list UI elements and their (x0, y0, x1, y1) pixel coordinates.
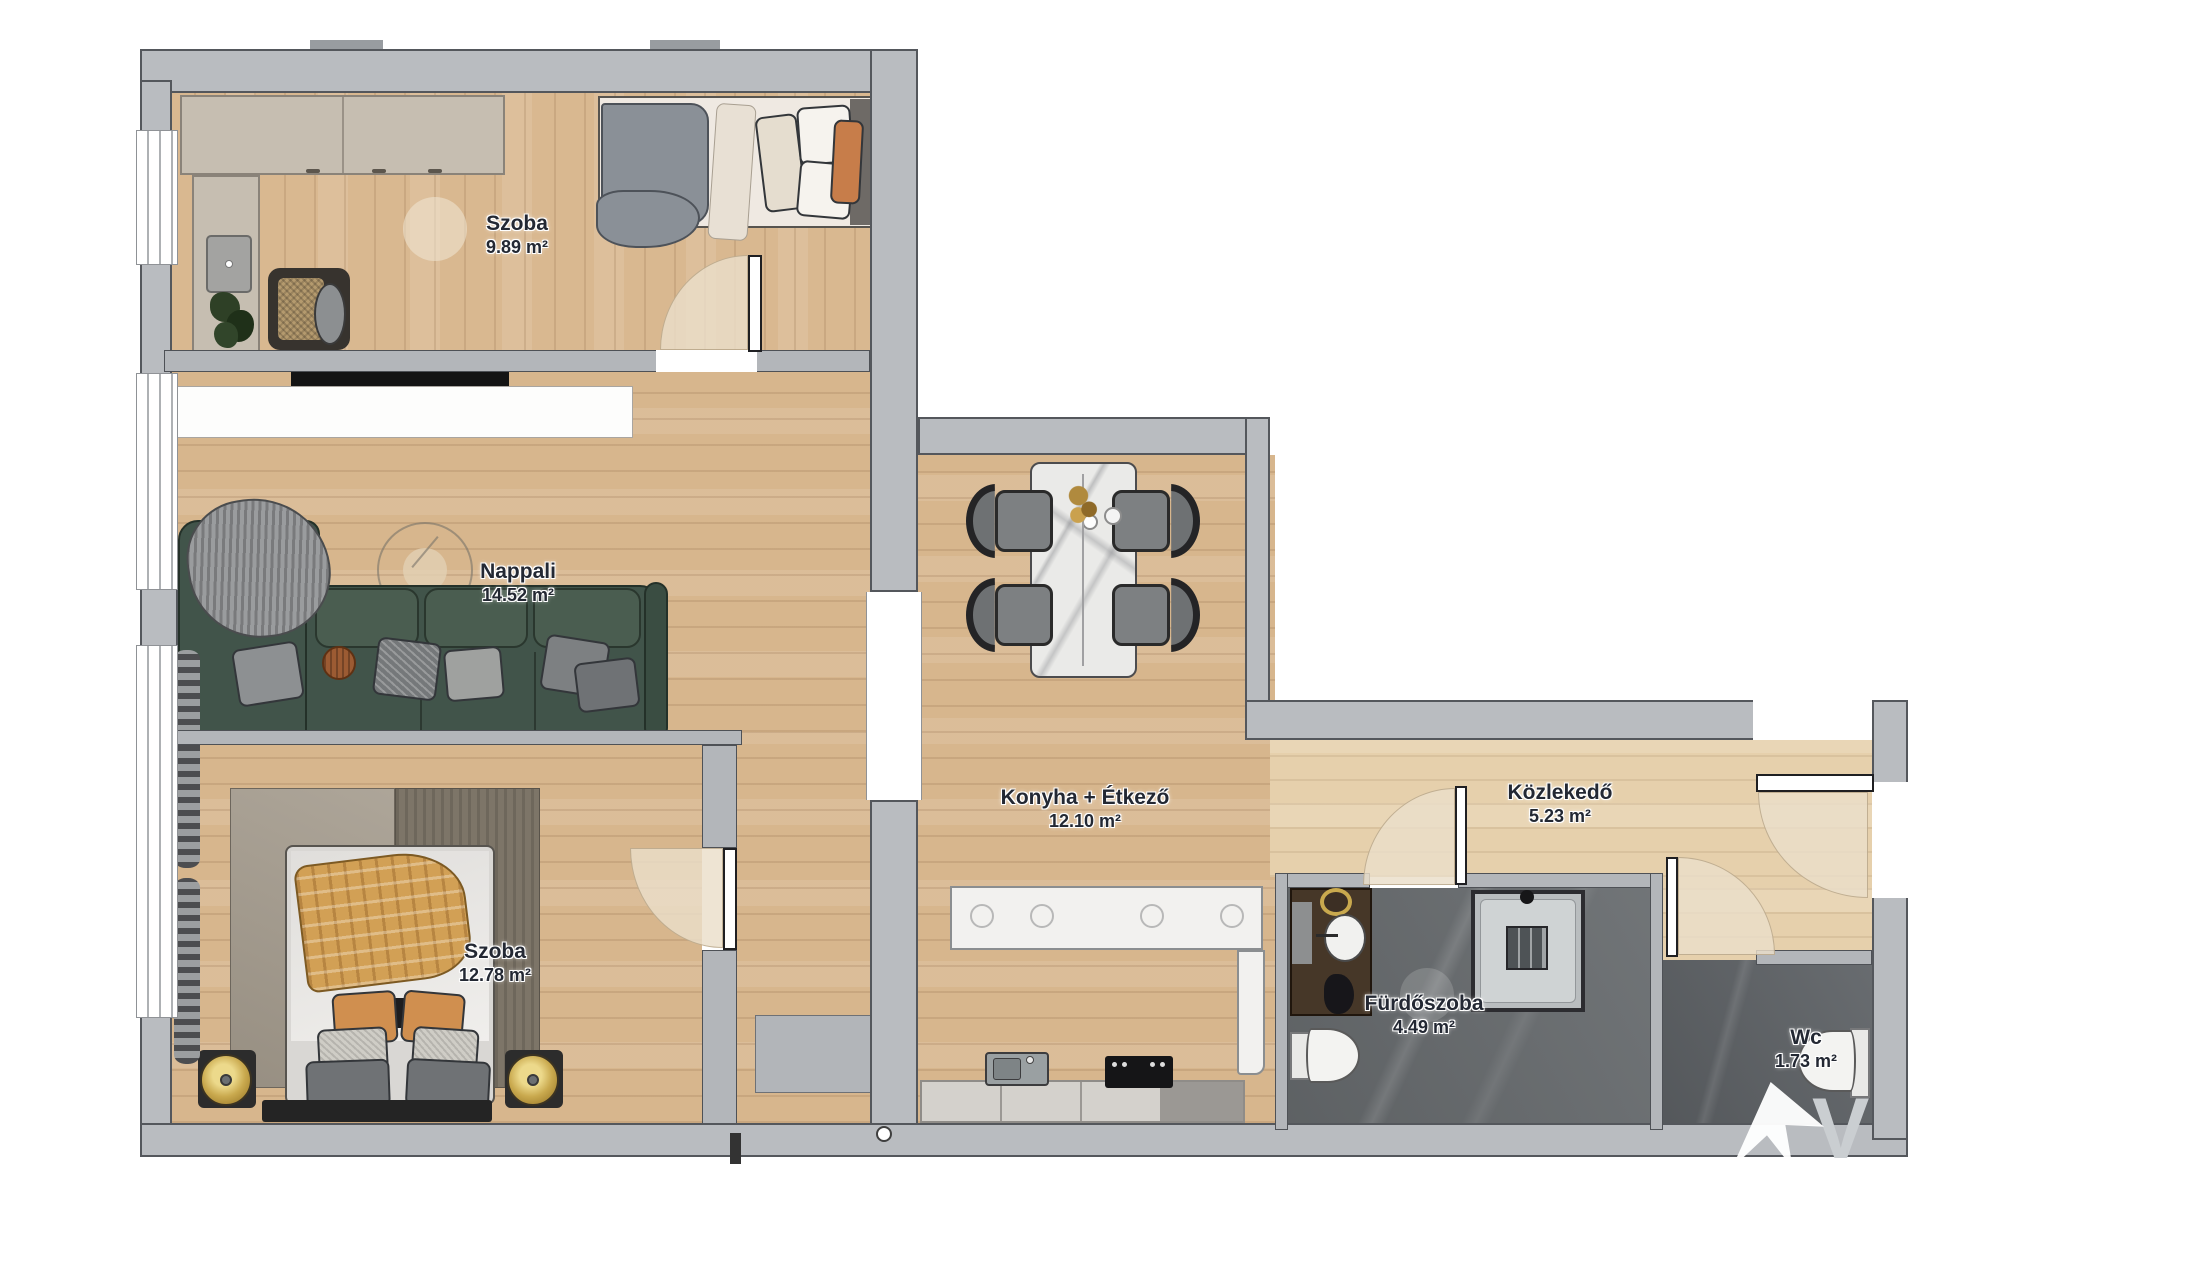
dining-chair-seat (1112, 584, 1170, 646)
desk-chair-cushion (314, 283, 346, 345)
table-decor-dish (1104, 507, 1122, 525)
cooktop-knob (1112, 1062, 1117, 1067)
room-area: 12.10 m² (1001, 810, 1170, 832)
shower-drain (1506, 926, 1548, 970)
room-area: 12.78 m² (459, 964, 531, 986)
ceiling-light-bedroom-top (403, 197, 467, 261)
plan-mark-dot (876, 1126, 892, 1142)
kitchen-counter-side (1237, 950, 1265, 1075)
sofa-pillow (372, 636, 443, 701)
bathroom-mirror (1320, 888, 1352, 916)
room-name: Szoba (459, 940, 531, 964)
bathroom-robe (1324, 974, 1354, 1014)
room-name: Konyha + Étkező (1001, 786, 1170, 810)
wall-bathroom-west (1275, 873, 1288, 1130)
nightstand-lamp-center (527, 1074, 539, 1086)
wardrobe-handle (372, 169, 386, 173)
tv (291, 371, 509, 386)
door-opening-bedroom-top (656, 350, 757, 372)
bathroom-faucet (1316, 934, 1338, 937)
kitchen-base-cabinets (920, 1080, 1245, 1123)
dining-chair-seat (1112, 490, 1170, 552)
tv-console (175, 386, 633, 438)
wardrobe-handle (306, 169, 320, 173)
door-leaf-bedroom-top (748, 255, 762, 352)
wardrobe-divider (342, 97, 344, 173)
kitchen-cooktop (1105, 1056, 1173, 1088)
passage-living-kitchen (866, 592, 922, 800)
wall-bedroom-bottom-east-lower (702, 950, 737, 1130)
shower-head (1520, 890, 1534, 904)
room-area: 14.52 m² (480, 584, 556, 606)
kitchen-counter-socket (1030, 904, 1054, 928)
sofa-pouf (322, 646, 356, 680)
dining-chair-seat (995, 490, 1053, 552)
kitchen-faucet (1026, 1056, 1034, 1064)
plant (214, 322, 238, 348)
room-label-kozlekedo: Közlekedő 5.23 m² (1507, 781, 1612, 827)
wall-bathroom-north-left (1275, 873, 1370, 888)
wall-top (140, 49, 918, 93)
wall-living-south (164, 730, 742, 745)
kitchen-counter-socket (1220, 904, 1244, 928)
wall-kitchen-east (1245, 417, 1270, 717)
sofa-seat-divider (534, 652, 536, 736)
cooktop-knob (1150, 1062, 1155, 1067)
room-name: Közlekedő (1507, 781, 1612, 805)
room-name: Wc (1775, 1026, 1837, 1050)
wall-kitchen-north (918, 417, 1270, 455)
window-living (136, 373, 178, 590)
sofa-armrest (644, 582, 668, 740)
wall-right-upper (870, 49, 918, 592)
room-label-nappali: Nappali 14.52 m² (480, 560, 556, 606)
wall-bathroom-east (1650, 873, 1663, 1130)
room-label-konyha: Konyha + Étkező 12.10 m² (1001, 786, 1170, 832)
wall-bathroom-north-right (1458, 873, 1663, 888)
door-leaf-entry (1756, 774, 1874, 792)
bathroom-vanity-panel (1292, 902, 1312, 964)
window-bedroom-top (136, 130, 178, 265)
kitchen-counter-socket (1140, 904, 1164, 928)
sofa-pillow (573, 656, 641, 713)
door-leaf-bedroom-bottom (723, 848, 737, 950)
kitchen-peninsula-counter (950, 886, 1263, 950)
wall-bedroom-bottom-east-upper (702, 745, 737, 848)
bed-top-pillow-orange (830, 119, 864, 204)
watermark-letter: V (1812, 1086, 1869, 1172)
door-leaf-bathroom (1455, 786, 1467, 885)
room-area: 4.49 m² (1365, 1016, 1484, 1038)
room-area: 1.73 m² (1775, 1050, 1837, 1072)
room-label-furdoszoba: Fürdőszoba 4.49 m² (1365, 992, 1484, 1038)
door-opening-entry (1753, 700, 1872, 740)
bed-bench (262, 1100, 492, 1122)
room-label-wc: Wc 1.73 m² (1775, 1026, 1837, 1072)
room-label-szoba2: Szoba 12.78 m² (459, 940, 531, 986)
nightstand-lamp-center (220, 1074, 232, 1086)
room-area: 9.89 m² (486, 236, 548, 258)
utility-block (755, 1015, 878, 1093)
bed-bottom-throw (293, 846, 475, 994)
wall-bedroom-top-south (164, 350, 870, 372)
dining-chair-seat (995, 584, 1053, 646)
entry-sidelight (1872, 782, 1908, 898)
cooktop-knob (1122, 1062, 1127, 1067)
wall-right-lower (870, 800, 918, 1130)
wall-bottom (140, 1123, 1908, 1157)
desk-knob (225, 260, 233, 268)
room-name: Fürdőszoba (1365, 992, 1484, 1016)
kitchen-sink-basin (993, 1058, 1021, 1080)
kitchen-counter-socket (970, 904, 994, 928)
room-label-szoba1: Szoba 9.89 m² (486, 212, 548, 258)
room-name: Nappali (480, 560, 556, 584)
bathroom-sink (1324, 914, 1366, 962)
wall-outer-east (1872, 700, 1908, 1140)
room-area: 5.23 m² (1507, 805, 1612, 827)
window-bedroom-bottom (136, 645, 178, 1018)
floor-plan-canvas: Szoba 9.89 m² Nappali 14.52 m² Szoba 12.… (0, 0, 2198, 1280)
room-name: Szoba (486, 212, 548, 236)
wardrobe-handle (428, 169, 442, 173)
door-leaf-wc (1666, 857, 1678, 957)
sofa-pillow (231, 640, 305, 708)
wall-left-pier (140, 588, 178, 647)
sofa-pillow (443, 646, 505, 703)
plan-mark-tick (730, 1133, 741, 1164)
cooktop-knob (1160, 1062, 1165, 1067)
